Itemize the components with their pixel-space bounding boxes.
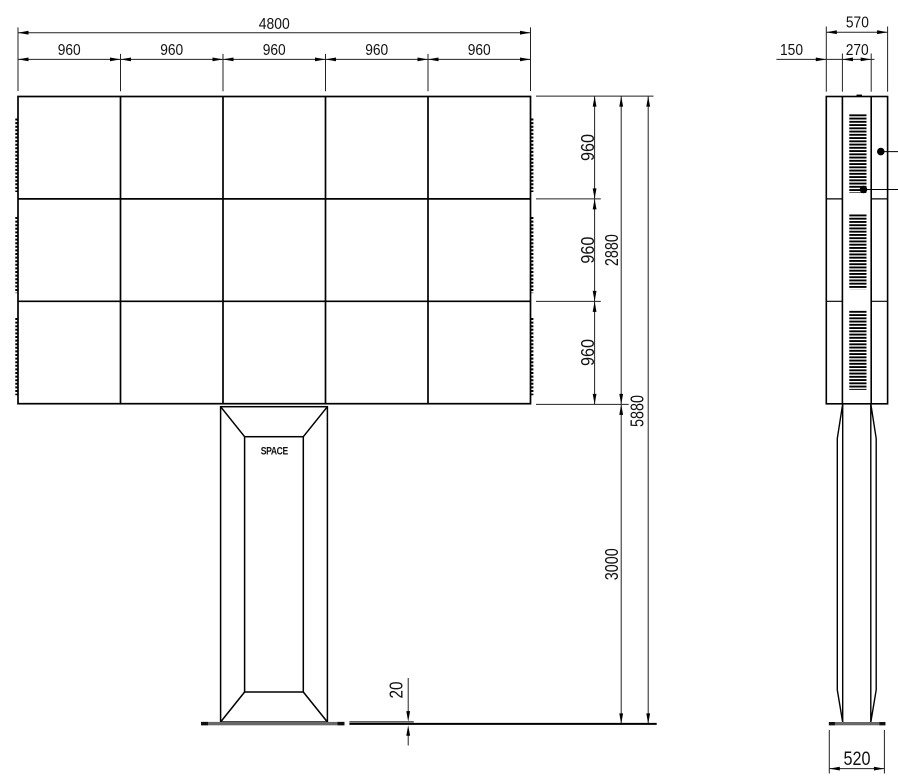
svg-text:270: 270	[846, 42, 869, 59]
svg-text:960: 960	[578, 134, 598, 161]
svg-text:SPACE: SPACE	[261, 446, 288, 458]
svg-text:960: 960	[468, 42, 491, 59]
svg-text:5880: 5880	[628, 395, 648, 427]
svg-text:3000: 3000	[602, 548, 622, 580]
svg-text:960: 960	[578, 339, 598, 366]
svg-text:960: 960	[160, 42, 183, 59]
svg-text:2880: 2880	[602, 234, 622, 266]
svg-text:960: 960	[365, 42, 388, 59]
svg-text:570: 570	[846, 15, 869, 32]
svg-text:20: 20	[387, 682, 407, 699]
svg-text:960: 960	[263, 42, 286, 59]
svg-text:960: 960	[578, 237, 598, 264]
svg-text:960: 960	[58, 42, 81, 59]
svg-text:4800: 4800	[259, 16, 290, 33]
svg-text:150: 150	[780, 42, 803, 59]
svg-text:520: 520	[844, 749, 871, 770]
